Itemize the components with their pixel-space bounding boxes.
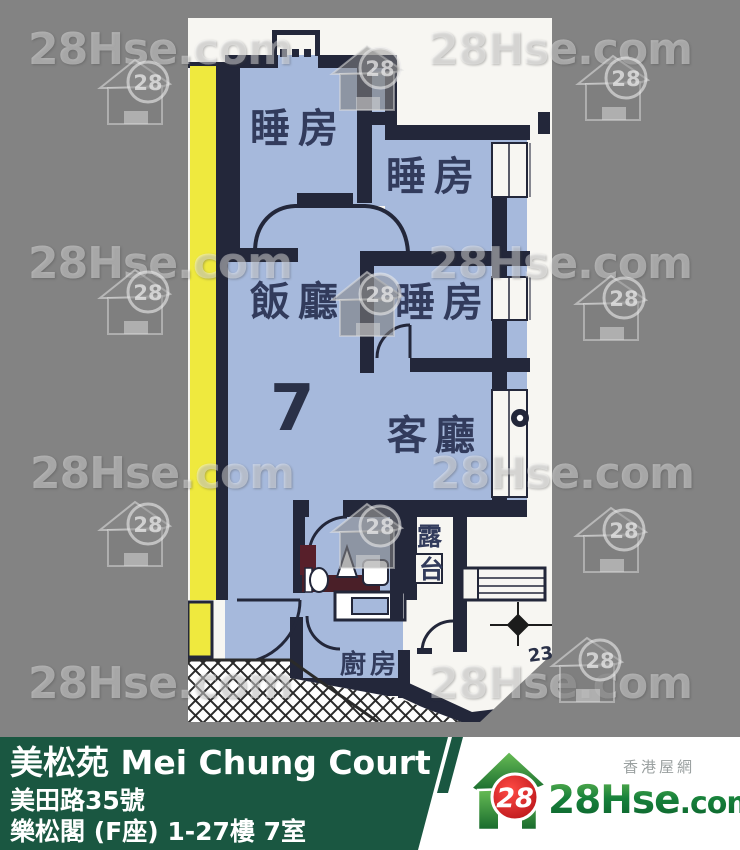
watermark-house-icon: 28	[574, 52, 654, 126]
watermark-house-icon: 28	[96, 266, 176, 340]
logo-house-icon: 28	[468, 748, 548, 834]
svg-text:28: 28	[133, 71, 162, 95]
svg-text:28: 28	[609, 519, 638, 543]
yellow-strip	[188, 62, 228, 657]
dimension-label: 23	[527, 643, 552, 667]
banner-text-block: 美松苑 Mei Chung Court 美田路35號 樂松閣 (F座) 1-27…	[10, 741, 431, 847]
logo-brand-text: 28Hse.com	[548, 778, 740, 823]
screenshot-stage: 睡房 睡房 飯廳 睡房 客廳 廚房 露 台 7 23 28Hse.com28Hs…	[0, 0, 740, 850]
logo-brand-main: 28Hse	[548, 778, 680, 823]
label-dining-room: 飯廳	[250, 279, 346, 325]
watermark-house-icon: 28	[572, 504, 652, 578]
site-logo: 28 28Hse.com 香港屋網	[468, 748, 740, 843]
kitchen-fixtures	[335, 592, 405, 620]
floor-plan-svg: 睡房 睡房 飯廳 睡房 客廳 廚房 露 台 7 23	[188, 18, 552, 722]
label-balcony-char2: 台	[419, 555, 444, 584]
svg-text:28: 28	[585, 649, 614, 673]
floor-plan: 睡房 睡房 飯廳 睡房 客廳 廚房 露 台 7 23	[188, 18, 552, 722]
label-kitchen: 廚房	[340, 649, 400, 680]
watermark-house-icon: 28	[96, 56, 176, 130]
logo-badge-number: 28	[496, 783, 534, 814]
watermark-house-icon: 28	[96, 498, 176, 572]
svg-text:28: 28	[611, 67, 640, 91]
hall-arch	[255, 206, 408, 252]
logo-brand-suffix: .com	[680, 786, 740, 821]
unit-number: 7	[270, 372, 315, 446]
estate-title: 美松苑 Mei Chung Court	[10, 741, 431, 785]
label-living-room: 客廳	[387, 413, 483, 459]
label-bedroom-middle: 睡房	[395, 280, 491, 326]
estate-address: 美田路35號	[10, 785, 431, 816]
pipe-symbol	[511, 409, 529, 427]
svg-text:28: 28	[133, 281, 162, 305]
label-balcony-char1: 露	[417, 522, 443, 551]
label-bedroom-top-left: 睡房	[250, 106, 346, 152]
svg-text:28: 28	[133, 513, 162, 537]
block-floor-flat: 樂松閣 (F座) 1-27樓 7室	[10, 816, 431, 847]
label-bedroom-top-right: 睡房	[386, 154, 482, 200]
watermark-house-icon: 28	[572, 272, 652, 346]
watermark-house-icon: 28	[548, 634, 628, 708]
svg-text:28: 28	[609, 287, 638, 311]
logo-chinese-name: 香港屋網	[623, 756, 695, 777]
